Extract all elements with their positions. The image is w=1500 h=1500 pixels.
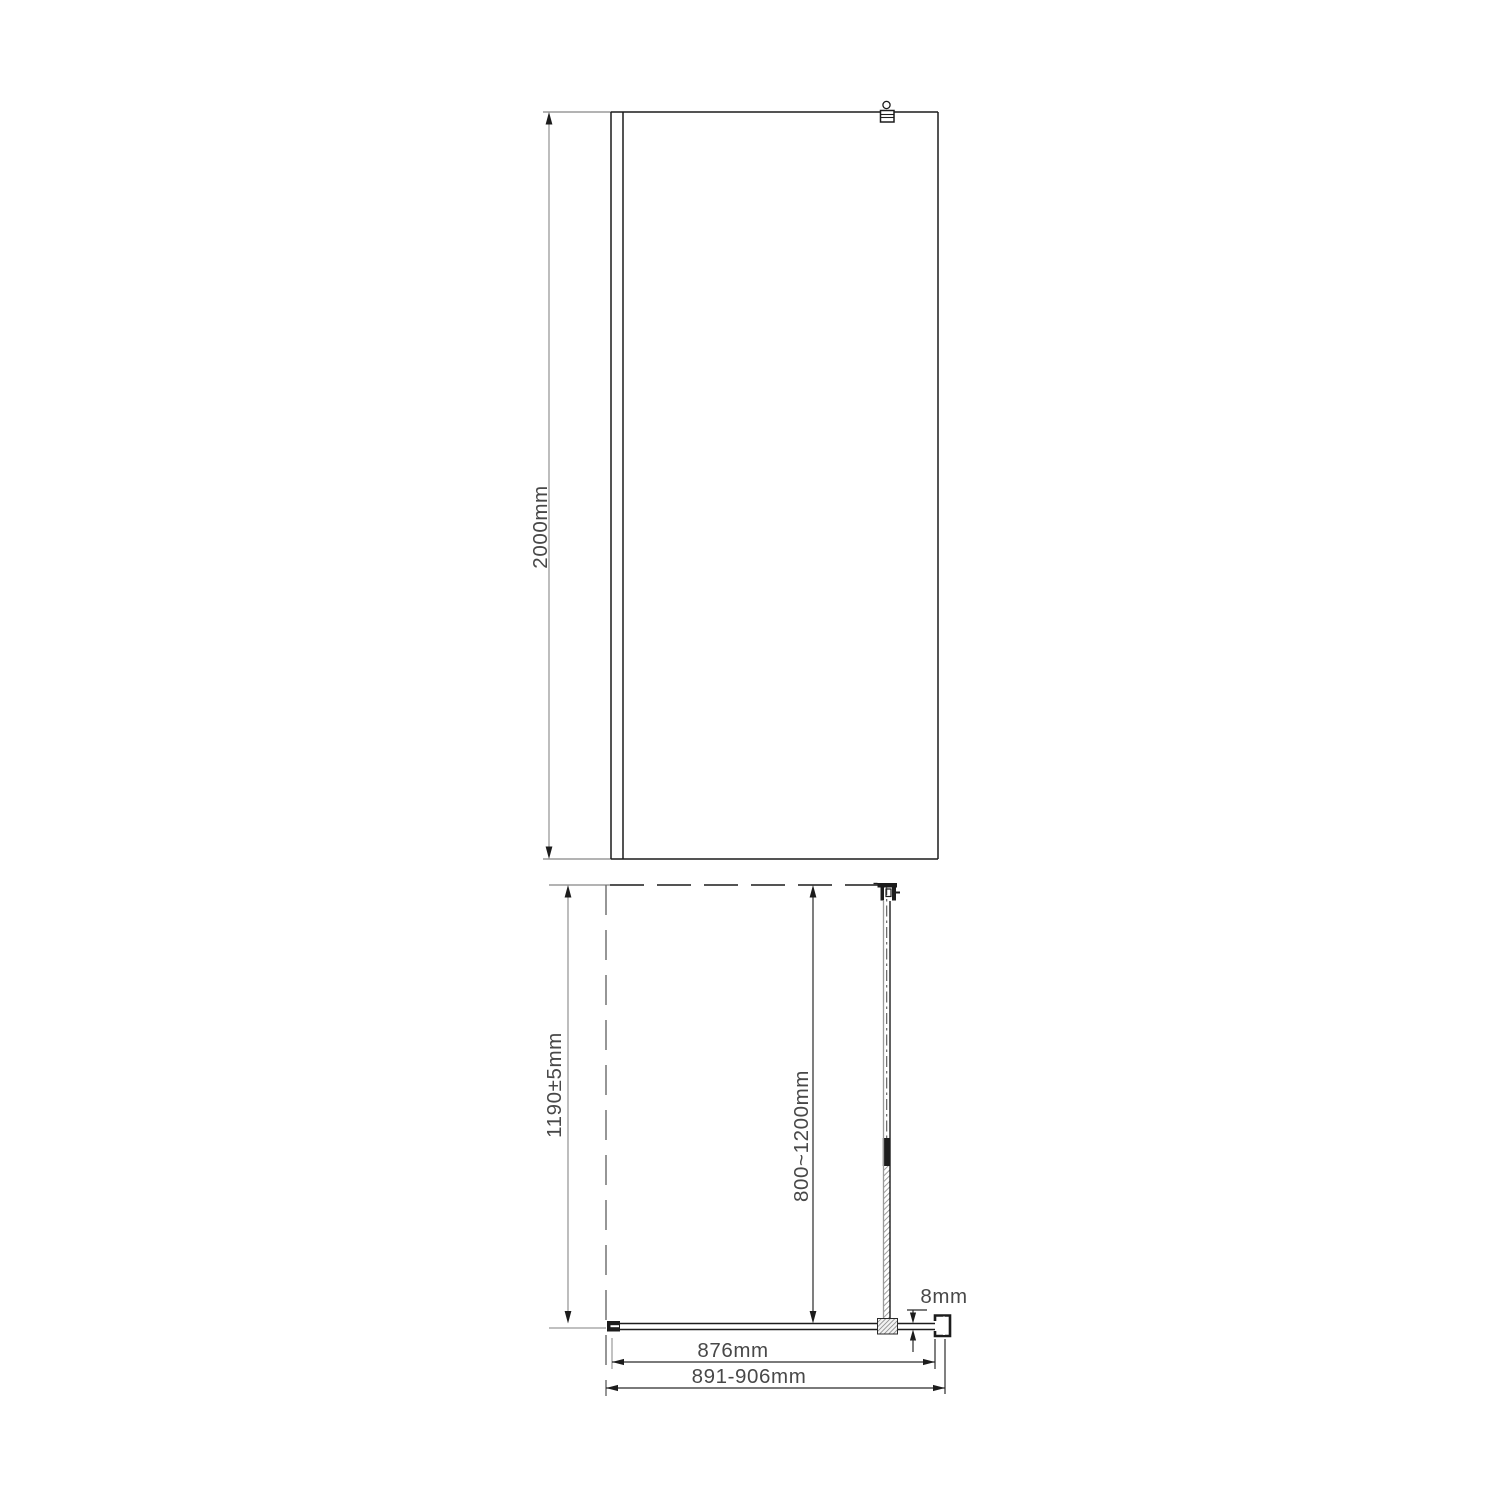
plan-view: 1190±5mm 800~1200mm (543, 883, 968, 1396)
bar-adjust-dimension-label: 800~1200mm (790, 1070, 813, 1202)
arrow-up-icon (565, 885, 572, 898)
arrow-down-icon (910, 1313, 916, 1324)
front-elevation-view: 2000mm (529, 101, 938, 859)
glass-panel-plan (883, 884, 891, 1319)
glass-thickness-label: 8mm (920, 1285, 967, 1308)
arrow-up-icon (810, 885, 817, 898)
arrow-right-icon (933, 1385, 945, 1391)
bracket-top-band (878, 883, 898, 888)
glass-clamp (878, 1319, 898, 1335)
arrow-left-icon (606, 1385, 618, 1391)
bracket-left-band (881, 888, 885, 901)
arrow-up-icon (910, 1330, 916, 1341)
glass-panel-front (611, 112, 938, 859)
drawing-canvas: 2000mm (0, 0, 1500, 1500)
height-dimension-label: 2000mm (529, 485, 552, 568)
shower-screen-technical-drawing: 2000mm (0, 0, 1500, 1500)
arrow-left-icon (612, 1359, 624, 1365)
arrow-down-icon (565, 1311, 572, 1324)
support-bar-wall-bracket-plan (935, 1316, 950, 1337)
arrow-right-icon (923, 1359, 935, 1365)
arrow-down-icon (810, 1311, 817, 1324)
bracket-right-band (892, 888, 896, 901)
glass-hatch-area (883, 1166, 890, 1319)
arrow-down-icon (546, 847, 553, 860)
bracket-knob-icon (883, 101, 890, 108)
support-bar-plan (607, 1319, 935, 1335)
support-bar-bracket-front (881, 101, 895, 122)
arrow-up-icon (546, 112, 553, 125)
overall-width-label: 891-906mm (692, 1365, 807, 1388)
wall-bracket-body (935, 1316, 950, 1337)
bracket-body (881, 111, 895, 123)
width-dimensions: 876mm 891-906mm (606, 1338, 945, 1394)
depth-dimension-label: 1190±5mm (543, 1032, 566, 1138)
glass-width-label: 876mm (697, 1339, 768, 1362)
